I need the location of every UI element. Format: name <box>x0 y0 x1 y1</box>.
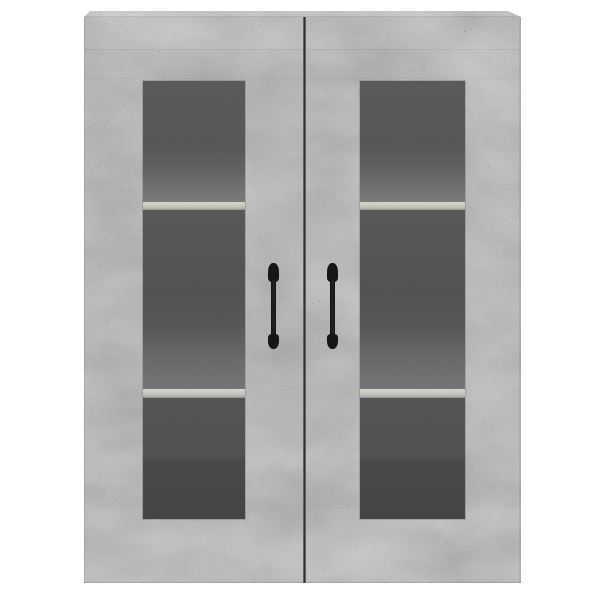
right-compartment-middle <box>360 210 465 389</box>
handle-bottom-knob <box>268 334 279 349</box>
left-compartment-bottom <box>143 398 245 519</box>
left-compartment-middle <box>143 210 245 389</box>
left-compartment-top <box>143 81 245 202</box>
door-gap-line <box>303 17 306 583</box>
product-photo-canvas <box>0 0 600 600</box>
left-door-glass-panel <box>143 81 245 519</box>
right-shelf-lower <box>360 389 465 398</box>
right-shelf-upper <box>360 202 465 210</box>
right-door-glass-panel <box>360 81 465 519</box>
handle-stem <box>330 280 335 336</box>
handle-stem <box>271 280 276 336</box>
left-shelf-lower <box>143 389 245 398</box>
right-compartment-top <box>360 81 465 202</box>
right-door-handle <box>327 263 338 349</box>
handle-bottom-knob <box>327 334 338 349</box>
left-shelf-upper <box>143 202 245 210</box>
right-compartment-bottom <box>360 398 465 519</box>
cabinet-left-edge <box>84 17 85 583</box>
left-door-handle <box>268 263 279 349</box>
